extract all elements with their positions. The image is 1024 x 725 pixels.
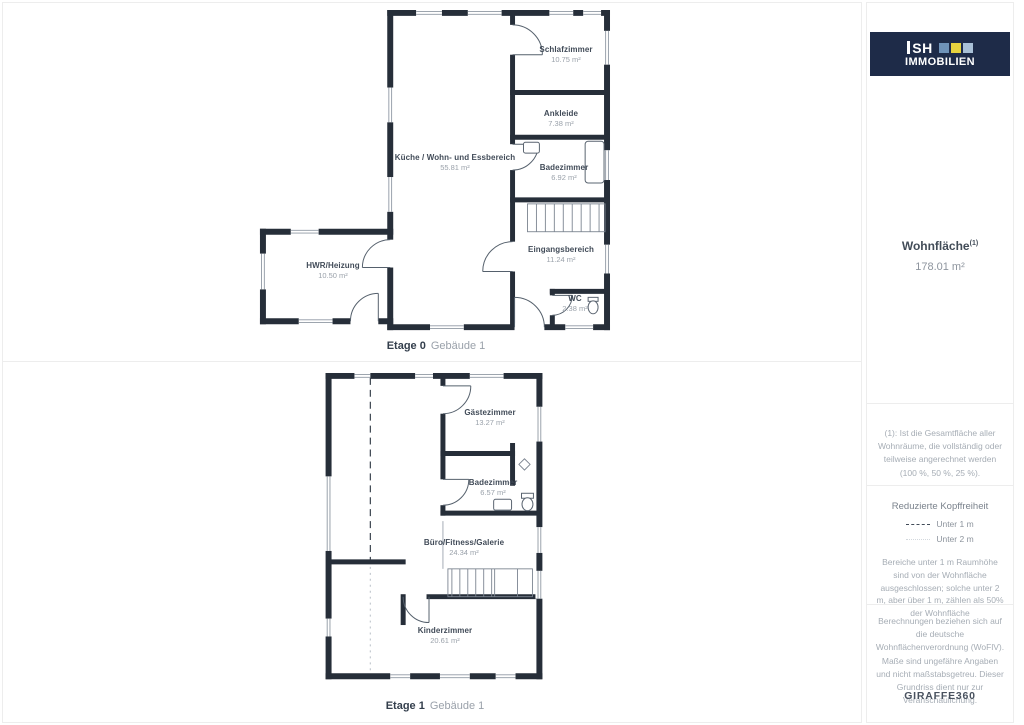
- logo-squares: [937, 43, 973, 53]
- stairs-etage-0: [527, 204, 605, 232]
- fixtures-etage-1: [494, 493, 534, 510]
- caption-building: Gebäude 1: [430, 700, 484, 712]
- living-area-value: 178.01 m²: [867, 261, 1013, 273]
- windows-etage-1: [325, 372, 544, 680]
- caption-building: Gebäude 1: [431, 340, 485, 352]
- floorplan-svg-etage-0: [3, 3, 861, 361]
- legend-row-unter-1m: Unter 1 m: [906, 519, 973, 529]
- brand-giraffe360: GIRAFFE360: [867, 690, 1013, 702]
- area-footnote: (1): Ist die Gesamtfläche aller Wohnräum…: [876, 427, 1004, 480]
- sidebar-divider: [867, 604, 1013, 605]
- floorplan-panel-etage-1: Gästezimmer 13.27 m² Badezimmer 6.57 m² …: [2, 361, 862, 723]
- door-swings-etage-1: [403, 386, 471, 623]
- dashed-line-icon: [906, 524, 930, 525]
- headroom-note: Bereiche unter 1 m Raumhöhe sind von der…: [875, 556, 1005, 620]
- floorplan-svg-etage-1: [3, 362, 861, 722]
- logo-square-lightblue-icon: [963, 43, 973, 53]
- caption-floor: Etage 0: [387, 340, 426, 352]
- dotted-line-icon: [906, 539, 930, 540]
- door-swings-etage-0: [350, 25, 572, 327]
- living-area-footnote-marker: (1): [970, 240, 979, 247]
- logo-i-bar: [907, 41, 910, 54]
- legend-label: Unter 2 m: [936, 534, 973, 544]
- windows-etage-0: [259, 9, 611, 331]
- stairs-etage-1: [448, 569, 533, 597]
- legend-label: Unter 1 m: [936, 519, 973, 529]
- fixtures-etage-0: [523, 141, 604, 314]
- closet-symbol: [519, 459, 530, 470]
- logo-text-top: SH: [912, 41, 932, 55]
- logo-top-row: SH: [907, 41, 972, 55]
- sidebar-divider: [867, 403, 1013, 404]
- sidebar: SH IMMOBILIEN Wohnfläche(1) 178.01 m² (1…: [866, 2, 1014, 723]
- caption-floor: Etage 1: [386, 700, 425, 712]
- sidebar-divider: [867, 485, 1013, 486]
- living-area-block: Wohnfläche(1) 178.01 m²: [867, 239, 1013, 273]
- door-gaps-etage-0: [350, 25, 556, 331]
- logo-text-bottom: IMMOBILIEN: [905, 57, 975, 68]
- floor-caption-etage-0: Etage 0Gebäude 1: [387, 340, 486, 352]
- logo-square-steelblue-icon: [939, 43, 949, 53]
- page: Küche / Wohn- und Essbereich 55.81 m² Sc…: [0, 0, 1024, 725]
- floor-caption-etage-1: Etage 1Gebäude 1: [386, 700, 485, 712]
- logo-square-yellow-icon: [951, 43, 961, 53]
- company-logo: SH IMMOBILIEN: [870, 32, 1010, 76]
- legend-row-unter-2m: Unter 2 m: [906, 534, 973, 544]
- headroom-legend: Unter 1 m Unter 2 m: [867, 519, 1013, 544]
- floorplan-panel-etage-0: Küche / Wohn- und Essbereich 55.81 m² Sc…: [2, 2, 862, 362]
- headroom-title: Reduzierte Kopffreiheit: [867, 501, 1013, 512]
- living-area-label: Wohnfläche(1): [867, 239, 1013, 253]
